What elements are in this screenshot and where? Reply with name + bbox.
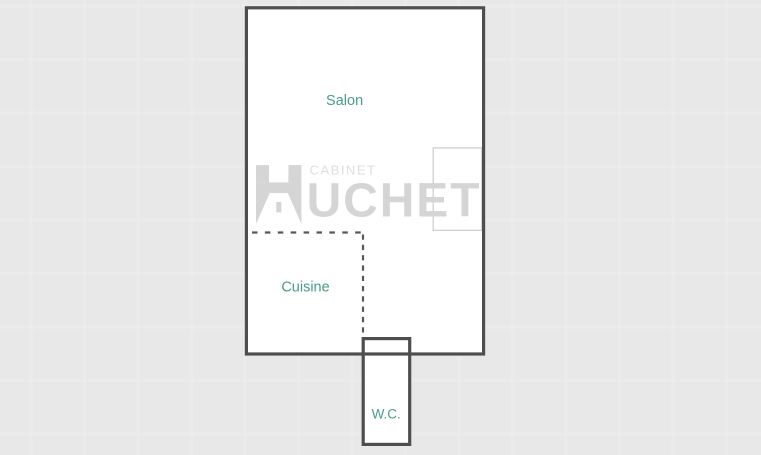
svg-text:UCHET: UCHET <box>307 175 482 228</box>
svg-text:W.C.: W.C. <box>372 407 401 422</box>
svg-text:Cuisine: Cuisine <box>281 280 329 296</box>
svg-text:Salon: Salon <box>326 93 363 109</box>
